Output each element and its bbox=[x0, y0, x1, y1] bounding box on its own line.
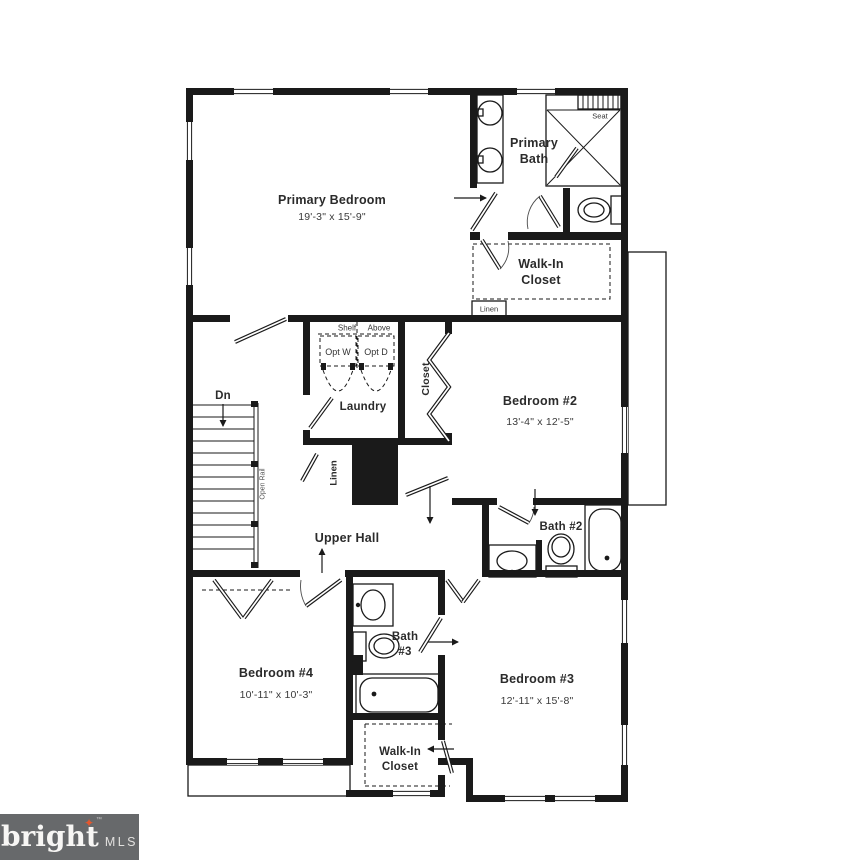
above-label: Above bbox=[368, 324, 391, 333]
opt-w-label: Opt W bbox=[325, 347, 351, 357]
bedroom2-closet-bifold bbox=[429, 333, 449, 441]
bedroom2-label: Bedroom #2 bbox=[503, 394, 577, 408]
bedroom3-label: Bedroom #3 bbox=[500, 672, 574, 686]
linen-upper-label: Linen bbox=[480, 305, 498, 314]
bedroom2-closet-label: Closet bbox=[420, 362, 432, 395]
floorplan-canvas: Primary Bedroom 19'-3" x 15'-9" Primary … bbox=[0, 0, 860, 860]
walk-in-closet-upper-label: Walk-In Closet bbox=[506, 256, 576, 289]
logo-trademark: ™ bbox=[96, 817, 102, 823]
laundry-label: Laundry bbox=[340, 401, 387, 413]
primary-bath-label: Primary Bath bbox=[503, 135, 565, 168]
seat-label: Seat bbox=[592, 112, 607, 121]
bedroom4-dims: 10'-11" x 10'-3" bbox=[240, 689, 313, 701]
bath2-label: Bath #2 bbox=[540, 521, 583, 533]
floorplan-drawing bbox=[0, 0, 860, 860]
linen-hall-label: Linen bbox=[329, 460, 340, 485]
primary-bedroom-label: Primary Bedroom bbox=[278, 193, 386, 207]
bright-mls-logo: bright ✦ ™ MLS bbox=[0, 814, 139, 860]
bedroom3-dims: 12'-11" x 15'-8" bbox=[501, 695, 574, 707]
open-rail-label: Open Rail bbox=[260, 468, 267, 499]
bedroom2-dims: 13'-4" x 12'-5" bbox=[506, 416, 574, 428]
primary-bedroom-dims: 19'-3" x 15'-9" bbox=[298, 211, 366, 223]
bath3-label: Bath #3 bbox=[387, 630, 423, 660]
bedroom4-label: Bedroom #4 bbox=[239, 666, 313, 680]
walk-in-closet-lower-label: Walk-In Closet bbox=[368, 745, 432, 775]
bath2-fixtures bbox=[489, 505, 625, 577]
shelf-label: Shelf bbox=[338, 324, 356, 333]
stairs bbox=[193, 401, 258, 568]
stairs-dn-label: Dn bbox=[215, 390, 231, 402]
opt-d-label: Opt D bbox=[364, 347, 388, 357]
logo-star-icon: ✦ bbox=[84, 816, 94, 830]
logo-suffix-text: MLS bbox=[105, 835, 138, 849]
upper-hall-label: Upper Hall bbox=[315, 531, 380, 545]
